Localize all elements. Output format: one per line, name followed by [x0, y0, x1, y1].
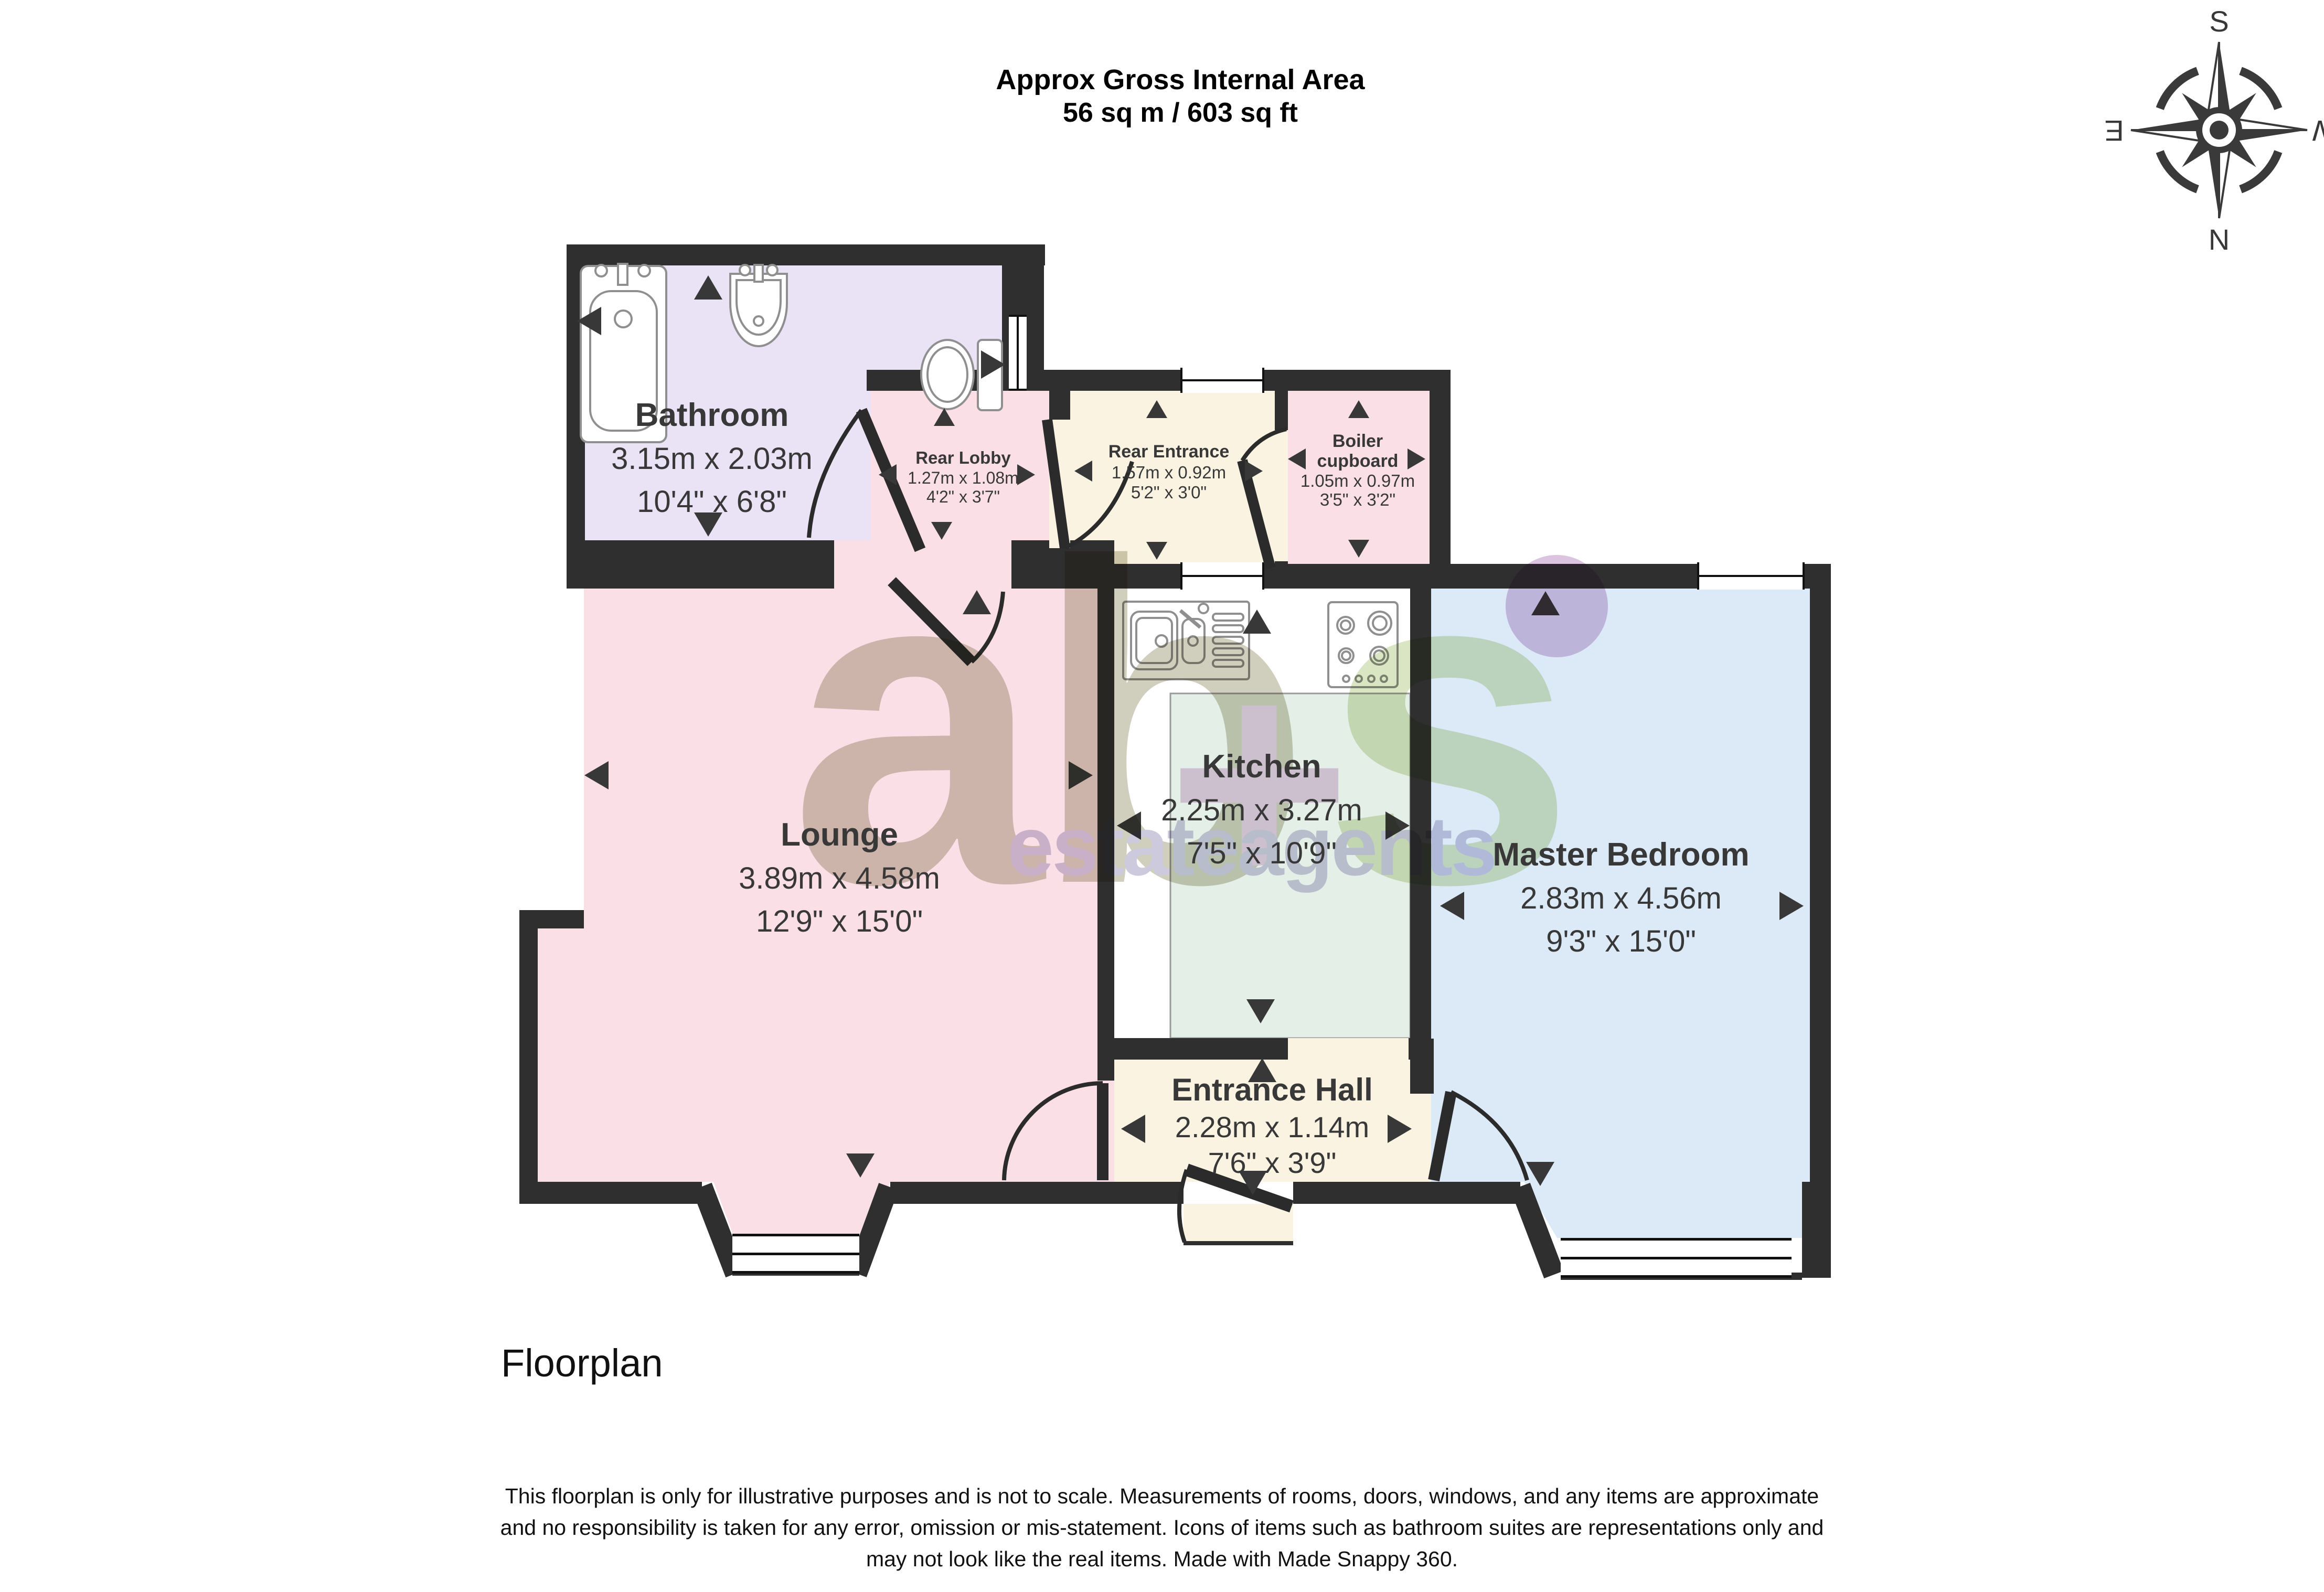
room-name: Lounge	[781, 817, 898, 853]
room-dims-imperial: 4'2" x 3'7"	[926, 487, 1000, 506]
room-dims-metric: 3.89m x 4.58m	[739, 861, 940, 895]
room-dims-metric: 1.05m x 0.97m	[1300, 471, 1415, 490]
room-name-line1: Boiler	[1332, 431, 1383, 451]
room-dims-imperial: 10'4" x 6'8"	[637, 485, 787, 519]
disclaimer-line3: may not look like the real items. Made w…	[0, 1543, 2324, 1575]
room-name: Rear Lobby	[915, 448, 1011, 467]
room-dims-imperial: 12'9" x 15'0"	[756, 904, 923, 938]
room-name: Kitchen	[1202, 749, 1321, 785]
room-dims-imperial: 5'2" x 3'0"	[1131, 483, 1207, 502]
room-labels: Bathroom 3.15m x 2.03m 10'4" x 6'8" Rear…	[0, 0, 2324, 1592]
room-dims-metric: 1.27m x 1.08m	[908, 468, 1019, 487]
bathroom-label: Bathroom 3.15m x 2.03m 10'4" x 6'8"	[611, 397, 813, 519]
room-name-line2: cupboard	[1317, 451, 1399, 471]
room-dims-imperial: 9'3" x 15'0"	[1546, 924, 1696, 958]
floorplan-caption: Floorplan	[501, 1341, 663, 1385]
boiler-cupboard-label: Boiler cupboard 1.05m x 0.97m 3'5" x 3'2…	[1300, 431, 1415, 509]
room-dims-metric: 2.28m x 1.14m	[1175, 1110, 1369, 1144]
lounge-label: Lounge 3.89m x 4.58m 12'9" x 15'0"	[739, 817, 940, 938]
master-bedroom-label: Master Bedroom 2.83m x 4.56m 9'3" x 15'0…	[1493, 837, 1749, 958]
room-dims-metric: 1.57m x 0.92m	[1112, 463, 1226, 482]
floorplan-page: Approx Gross Internal Area 56 sq m / 603…	[0, 0, 2324, 1592]
rear-entrance-label: Rear Entrance 1.57m x 0.92m 5'2" x 3'0"	[1108, 442, 1230, 502]
room-dims-imperial: 7'6" x 3'9"	[1208, 1146, 1337, 1179]
disclaimer-line2: and no responsibility is taken for any e…	[0, 1512, 2324, 1543]
room-name: Bathroom	[635, 397, 789, 433]
room-dims-metric: 2.83m x 4.56m	[1520, 881, 1722, 915]
room-name: Entrance Hall	[1171, 1072, 1372, 1107]
room-dims-metric: 3.15m x 2.03m	[611, 442, 813, 476]
room-dims-metric: 2.25m x 3.27m	[1161, 793, 1362, 827]
room-name: Rear Entrance	[1108, 442, 1230, 462]
room-dims-imperial: 3'5" x 3'2"	[1320, 490, 1395, 509]
kitchen-label: Kitchen 2.25m x 3.27m 7'5" x 10'9"	[1161, 749, 1362, 870]
entrance-hall-label: Entrance Hall 2.28m x 1.14m 7'6" x 3'9"	[1171, 1072, 1372, 1179]
disclaimer-text: This floorplan is only for illustrative …	[0, 1480, 2324, 1575]
room-dims-imperial: 7'5" x 10'9"	[1187, 836, 1337, 870]
rear-lobby-label: Rear Lobby 1.27m x 1.08m 4'2" x 3'7"	[908, 448, 1019, 506]
disclaimer-line1: This floorplan is only for illustrative …	[0, 1480, 2324, 1512]
room-name: Master Bedroom	[1493, 837, 1749, 873]
